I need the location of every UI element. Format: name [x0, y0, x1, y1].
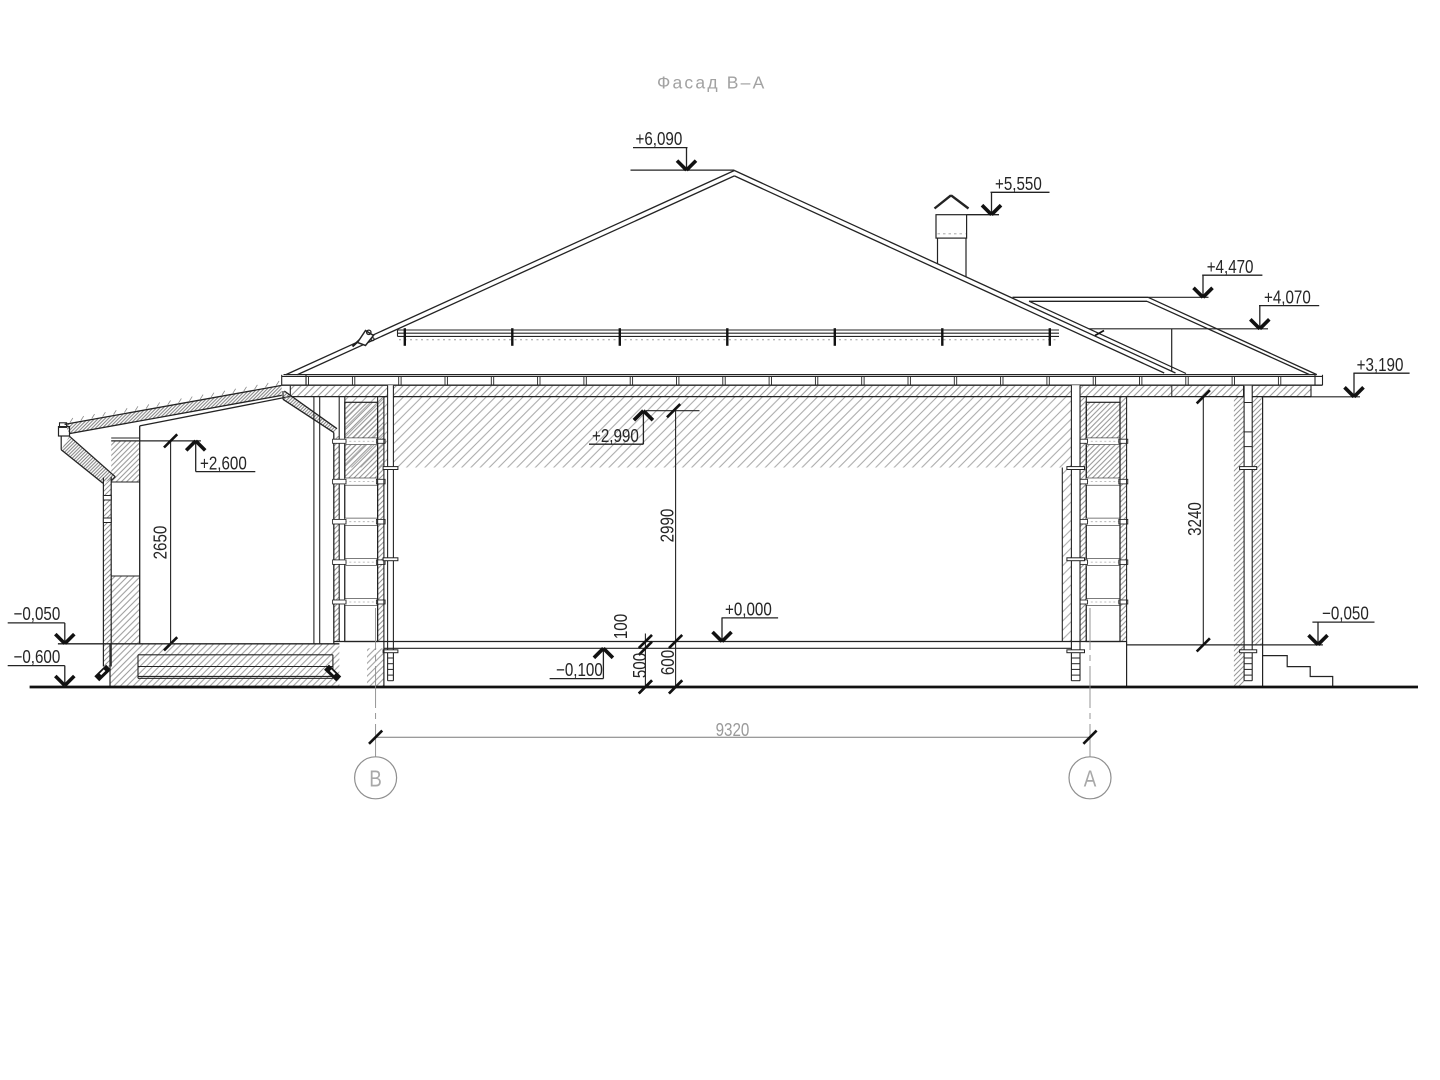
svg-text:А: А: [1084, 767, 1097, 792]
svg-text:500: 500: [630, 653, 651, 678]
svg-text:+5,550: +5,550: [995, 174, 1042, 195]
svg-text:Фасад В–А: Фасад В–А: [657, 73, 766, 93]
svg-text:+4,470: +4,470: [1207, 257, 1254, 278]
svg-text:+2,600: +2,600: [200, 453, 247, 474]
svg-text:−0,050: −0,050: [1322, 603, 1369, 624]
svg-text:В: В: [369, 767, 382, 792]
svg-text:−0,100: −0,100: [556, 660, 603, 681]
svg-text:600: 600: [658, 650, 679, 675]
svg-text:+3,190: +3,190: [1357, 355, 1404, 376]
svg-text:2650: 2650: [150, 526, 171, 560]
svg-text:9320: 9320: [716, 720, 750, 741]
svg-text:100: 100: [611, 614, 632, 639]
svg-text:+0,000: +0,000: [725, 599, 772, 620]
svg-text:+2,990: +2,990: [592, 426, 639, 447]
svg-text:2990: 2990: [657, 509, 678, 543]
svg-text:+6,090: +6,090: [636, 129, 683, 150]
svg-text:3240: 3240: [1185, 502, 1206, 536]
svg-text:+4,070: +4,070: [1264, 287, 1311, 308]
svg-text:−0,050: −0,050: [14, 604, 61, 625]
svg-text:−0,600: −0,600: [14, 647, 61, 668]
